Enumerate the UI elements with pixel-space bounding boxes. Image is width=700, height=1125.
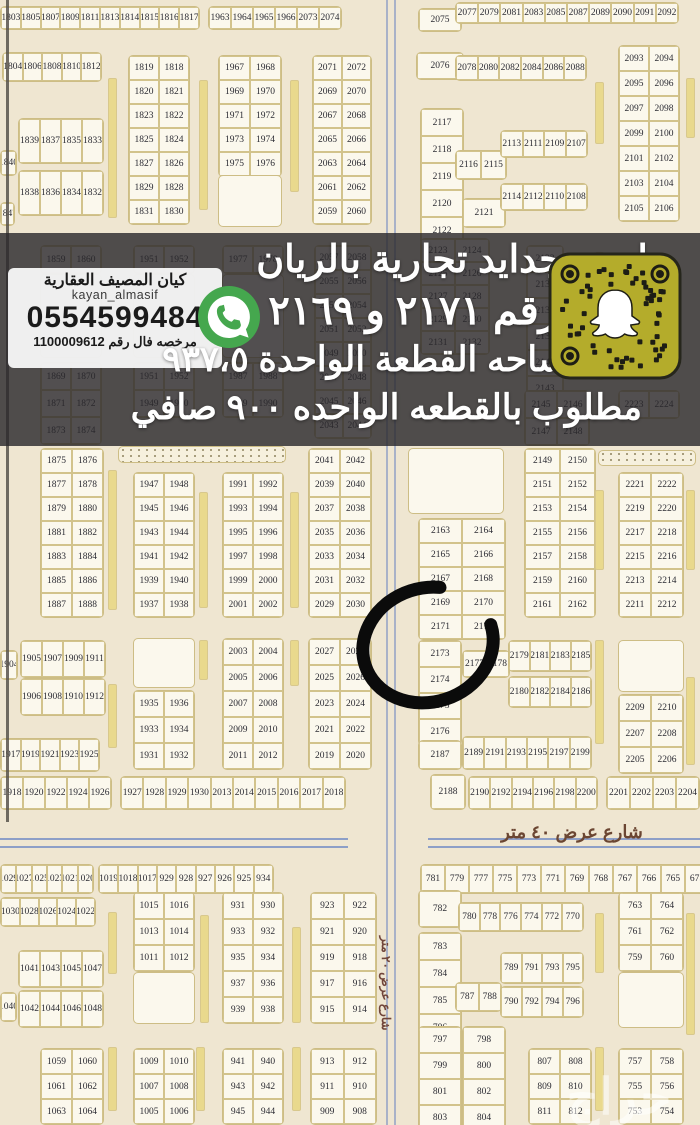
plot-cell: 2113 bbox=[501, 131, 523, 157]
plot-cell: 2166 bbox=[462, 543, 505, 567]
plot-cell: 2162 bbox=[560, 593, 595, 617]
plot-cell: 778 bbox=[480, 903, 501, 931]
plot-cell: 1008 bbox=[164, 1074, 194, 1099]
map-block-b-941: 941940943942945944 bbox=[222, 1048, 284, 1125]
map-block-s4 bbox=[595, 82, 604, 144]
map-block-s3 bbox=[290, 80, 299, 192]
map-block-m-empty-top bbox=[408, 448, 504, 514]
plot-cell: 771 bbox=[541, 865, 565, 893]
plot-cell: 1991 bbox=[223, 473, 253, 497]
map-block-s18 bbox=[200, 915, 209, 1023]
agency-phone[interactable]: 0554599484 bbox=[8, 302, 222, 334]
plot-cell: 2212 bbox=[651, 593, 683, 617]
map-block-park-left bbox=[118, 446, 286, 463]
plot-cell: 1909 bbox=[63, 641, 84, 677]
plot-cell: 2163 bbox=[419, 519, 462, 543]
plot-cell: 930 bbox=[253, 893, 283, 919]
map-block-b-787: 787788 bbox=[455, 982, 502, 1012]
plot-cell: 1965 bbox=[253, 7, 275, 29]
plot-cell: 1806 bbox=[23, 53, 43, 81]
plot-cell: 2007 bbox=[223, 691, 253, 717]
plot-cell: 2203 bbox=[653, 777, 676, 809]
plot-cell: 2038 bbox=[340, 497, 371, 521]
plot-cell: 2186 bbox=[571, 677, 592, 707]
plot-cell: 2096 bbox=[649, 71, 679, 96]
plot-cell: 936 bbox=[253, 971, 283, 997]
whatsapp-icon[interactable] bbox=[198, 286, 260, 348]
plot-cell: 2202 bbox=[630, 777, 653, 809]
plot-cell: 2184 bbox=[550, 677, 571, 707]
plot-cell: 1888 bbox=[72, 593, 103, 617]
plot-cell: 776 bbox=[500, 903, 521, 931]
map-block-strip-2077: 2077207920812083208520872089209020912092 bbox=[455, 2, 679, 24]
map-block-b-1019: 101910181017929928927926925934 bbox=[98, 864, 274, 894]
plot-cell: 915 bbox=[311, 997, 344, 1023]
plot-cell: 1921 bbox=[40, 739, 60, 771]
plot-cell: 2086 bbox=[543, 56, 565, 80]
map-block-b-763e bbox=[618, 972, 684, 1028]
map-block-s5 bbox=[686, 78, 695, 138]
plot-cell: 2026 bbox=[340, 665, 371, 691]
plot-cell: 2204 bbox=[676, 777, 699, 809]
map-block-m-1906: 1906190819101912 bbox=[20, 678, 106, 716]
plot-cell: 1807 bbox=[41, 7, 61, 29]
map-block-b-1059: 105910601061106210631064 bbox=[40, 1048, 104, 1125]
plot-cell: 1021 bbox=[62, 865, 77, 893]
plot-cell: 2014 bbox=[233, 777, 255, 809]
map-block-b-798: 798800802804 bbox=[462, 1026, 506, 1125]
plot-cell: 1838 bbox=[19, 171, 40, 215]
plot-cell: 1917 bbox=[1, 739, 21, 771]
plot-cell: 799 bbox=[419, 1053, 461, 1079]
plot-cell: 2198 bbox=[554, 777, 575, 809]
plot-cell: 1972 bbox=[250, 104, 281, 128]
plot-cell: 1924 bbox=[67, 777, 89, 809]
plot-cell: 2164 bbox=[462, 519, 505, 543]
plot-cell: 2111 bbox=[523, 131, 545, 157]
map-block-s15 bbox=[595, 640, 604, 744]
plot-cell: 1966 bbox=[275, 7, 297, 29]
plot-cell: 1881 bbox=[41, 521, 72, 545]
plot-cell: 2071 bbox=[313, 56, 342, 80]
plot-cell: 2092 bbox=[656, 3, 678, 23]
map-block-b-913: 913912911910909908 bbox=[310, 1048, 377, 1125]
plot-cell: 2153 bbox=[525, 497, 560, 521]
plot-cell: 2101 bbox=[619, 146, 649, 171]
plot-cell: 941 bbox=[223, 1049, 253, 1074]
plot-cell: 2040 bbox=[340, 473, 371, 497]
plot-cell: 2120 bbox=[421, 190, 463, 217]
plot-cell: 2097 bbox=[619, 96, 649, 121]
plot-cell: 789 bbox=[501, 953, 522, 983]
plot-cell: 1882 bbox=[72, 521, 103, 545]
plot-cell: 2175 bbox=[419, 693, 461, 719]
agency-handle: kayan_almasif bbox=[8, 288, 222, 302]
plot-cell: 790 bbox=[501, 987, 522, 1017]
plot-cell: 2112 bbox=[523, 184, 545, 210]
plot-cell: 1064 bbox=[72, 1099, 103, 1124]
plot-cell: 2195 bbox=[527, 737, 548, 769]
plot-cell: 2211 bbox=[619, 593, 651, 617]
map-block-blk-1839: 1839183718351833 bbox=[18, 118, 104, 164]
map-block-m-2180: 2180218221842186 bbox=[508, 676, 592, 708]
plot-cell: 1027 bbox=[16, 865, 31, 893]
plot-cell: 1996 bbox=[253, 521, 283, 545]
plot-cell: 2090 bbox=[611, 3, 633, 23]
plot-cell: 2155 bbox=[525, 521, 560, 545]
plot-cell: 2218 bbox=[651, 521, 683, 545]
map-block-b-1041: 1041104310451047 bbox=[18, 950, 104, 988]
map-block-m-1947: 1947194819451946194319441941194219391940… bbox=[133, 472, 195, 618]
map-block-m-2179: 2179218121832185 bbox=[508, 640, 592, 672]
map-block-col-2071: 2071207220692070206720682065206620632064… bbox=[312, 55, 372, 225]
plot-cell: 2093 bbox=[619, 46, 649, 71]
plot-cell: 2025 bbox=[309, 665, 340, 691]
plot-cell: 1875 bbox=[41, 449, 72, 473]
plot-cell: 1019 bbox=[99, 865, 118, 893]
plot-cell: 1062 bbox=[72, 1074, 103, 1099]
plot-cell: 2152 bbox=[560, 473, 595, 497]
plot-cell: 919 bbox=[311, 945, 344, 971]
plot-cell: 2196 bbox=[533, 777, 554, 809]
plot-cell: 1880 bbox=[72, 497, 103, 521]
plot-cell: 796 bbox=[563, 987, 584, 1017]
map-block-m-2163: 2163216421652166216721682169217021712172 bbox=[418, 518, 506, 640]
map-block-b-790: 790792794796 bbox=[500, 986, 584, 1018]
plot-cell: 2190 bbox=[469, 777, 490, 809]
plot-cell: 2018 bbox=[323, 777, 345, 809]
plot-cell: 1818 bbox=[159, 56, 189, 80]
map-block-m-1935: 193519361933193419311932 bbox=[133, 690, 195, 770]
plot-cell: 2077 bbox=[456, 3, 478, 23]
agency-name: كيان المصيف العقارية bbox=[8, 270, 222, 290]
plot-cell: 800 bbox=[463, 1053, 505, 1079]
plot-cell: 934 bbox=[254, 865, 273, 893]
plot-cell: 2027 bbox=[309, 639, 340, 665]
plot-cell: 797 bbox=[419, 1027, 461, 1053]
plot-cell: 2067 bbox=[313, 104, 342, 128]
plot-cell: 783 bbox=[419, 933, 461, 960]
plot-cell: 1830 bbox=[159, 200, 189, 224]
plot-cell: 1999 bbox=[223, 569, 253, 593]
plot-cell: 1816 bbox=[159, 7, 179, 29]
plot-cell: 2169 bbox=[419, 591, 462, 615]
plot-cell: 2114 bbox=[501, 184, 523, 210]
plot-cell: 2206 bbox=[651, 747, 683, 773]
plot-cell: 1992 bbox=[253, 473, 283, 497]
plot-cell: 804 bbox=[463, 1105, 505, 1125]
plot-cell: 1827 bbox=[129, 152, 159, 176]
plot-cell: 2168 bbox=[462, 567, 505, 591]
map-block-blk-1838: 1838183618341832 bbox=[18, 170, 104, 216]
map-block-b-923: 923922921920919918917916915914 bbox=[310, 892, 377, 1024]
plot-cell: 1942 bbox=[164, 545, 194, 569]
map-block-m-2190: 219021922194219621982200 bbox=[468, 776, 598, 810]
plot-cell: 1042 bbox=[19, 991, 40, 1027]
plot-cell: 1823 bbox=[129, 104, 159, 128]
map-block-b-931: 931930933932935934937936939938 bbox=[222, 892, 284, 1024]
plot-cell: 1933 bbox=[134, 717, 164, 743]
plot-cell: 772 bbox=[542, 903, 563, 931]
plot-cell: 1017 bbox=[138, 865, 157, 893]
plot-cell: 2032 bbox=[340, 569, 371, 593]
plot-cell: 1819 bbox=[129, 56, 159, 80]
plot-cell: 944 bbox=[253, 1099, 283, 1124]
plot-cell: 1025 bbox=[32, 865, 47, 893]
plot-cell: 909 bbox=[311, 1099, 344, 1124]
map-block-s20 bbox=[595, 913, 604, 973]
plot-cell: 1820 bbox=[129, 80, 159, 104]
plot-cell: 2064 bbox=[342, 152, 371, 176]
screenshot-root: 1803180518071809181118131814181518161817… bbox=[0, 0, 700, 1125]
plot-cell: 1048 bbox=[82, 991, 103, 1027]
plot-cell: 1934 bbox=[164, 717, 194, 743]
plot-cell: 2179 bbox=[509, 641, 530, 671]
street-label-horizontal: شارع عرض ٤٠ متر bbox=[462, 822, 682, 843]
plot-cell: 2078 bbox=[456, 56, 478, 80]
plot-cell: 1948 bbox=[164, 473, 194, 497]
plot-cell: 2034 bbox=[340, 545, 371, 569]
plot-cell: 2066 bbox=[342, 128, 371, 152]
plot-cell: 2178 bbox=[486, 651, 509, 677]
plot-cell: 1023 bbox=[47, 865, 62, 893]
plot-cell: 1832 bbox=[82, 171, 103, 215]
plot-cell: 675 bbox=[685, 865, 700, 893]
plot-cell: 774 bbox=[521, 903, 542, 931]
plot-cell: 1809 bbox=[60, 7, 80, 29]
plot-cell: 2156 bbox=[560, 521, 595, 545]
plot-cell: 802 bbox=[463, 1079, 505, 1105]
plot-cell: 1935 bbox=[134, 691, 164, 717]
plot-cell: 1016 bbox=[164, 893, 194, 919]
snapcode-icon[interactable] bbox=[548, 252, 682, 380]
plot-cell: 2108 bbox=[566, 184, 588, 210]
plot-cell: 934 bbox=[253, 945, 283, 971]
plot-cell: 921 bbox=[311, 919, 344, 945]
plot-cell: 942 bbox=[253, 1074, 283, 1099]
plot-cell: 2031 bbox=[309, 569, 340, 593]
plot-cell: 917 bbox=[311, 971, 344, 997]
plot-cell: 1834 bbox=[61, 171, 82, 215]
plot-cell: 2219 bbox=[619, 497, 651, 521]
plot-cell: 1928 bbox=[143, 777, 165, 809]
plot-cell: 769 bbox=[565, 865, 589, 893]
plot-cell: 1805 bbox=[21, 7, 41, 29]
plot-cell: 1997 bbox=[223, 545, 253, 569]
plot-cell: 2012 bbox=[253, 743, 283, 769]
plot-cell: 939 bbox=[223, 997, 253, 1023]
plot-cell: 2022 bbox=[340, 717, 371, 743]
plot-cell: 1043 bbox=[40, 951, 61, 987]
plot-cell: 767 bbox=[613, 865, 637, 893]
plot-cell: 1929 bbox=[166, 777, 188, 809]
plot-cell: 1905 bbox=[21, 641, 42, 677]
plot-cell: 765 bbox=[661, 865, 685, 893]
map-block-strip-1963: 196319641965196620732074 bbox=[208, 6, 342, 30]
plot-cell: 1044 bbox=[40, 991, 61, 1027]
plot-cell: 2010 bbox=[253, 717, 283, 743]
plot-cell: 929 bbox=[157, 865, 176, 893]
plot-cell: 2102 bbox=[649, 146, 679, 171]
map-block-m-2041: 2041204220392040203720382035203620332034… bbox=[308, 448, 372, 618]
plot-cell: 784 bbox=[419, 960, 461, 987]
plot-cell: 1047 bbox=[82, 951, 103, 987]
plot-cell: 1020 bbox=[78, 865, 93, 893]
plot-cell: 937 bbox=[223, 971, 253, 997]
plot-cell: 2191 bbox=[484, 737, 505, 769]
plot-cell: 916 bbox=[344, 971, 377, 997]
plot-cell: 1885 bbox=[41, 569, 72, 593]
plot-cell: 1009 bbox=[134, 1049, 164, 1074]
map-block-m-1927: 1927192819291930201320142015201620172018 bbox=[120, 776, 346, 810]
map-block-m-1918: 19181920192219241926 bbox=[0, 776, 112, 810]
plot-cell: 2028 bbox=[340, 639, 371, 665]
plot-cell: 931 bbox=[223, 893, 253, 919]
plot-cell: 2062 bbox=[342, 176, 371, 200]
plot-cell: 1007 bbox=[134, 1074, 164, 1099]
plot-cell: 2105 bbox=[619, 196, 649, 221]
plot-cell: 775 bbox=[493, 865, 517, 893]
plot-cell: 801 bbox=[419, 1079, 461, 1105]
plot-cell: 777 bbox=[469, 865, 493, 893]
map-block-s13 bbox=[199, 640, 208, 680]
plot-cell: 914 bbox=[344, 997, 377, 1023]
map-block-b-1009: 100910101007100810051006 bbox=[133, 1048, 195, 1125]
plot-cell: 2019 bbox=[309, 743, 340, 769]
plot-cell: 766 bbox=[637, 865, 661, 893]
plot-cell: 1995 bbox=[223, 521, 253, 545]
plot-cell: 2088 bbox=[564, 56, 586, 80]
plot-cell: 2005 bbox=[223, 665, 253, 691]
map-block-s2 bbox=[199, 80, 208, 210]
plot-cell: 2210 bbox=[651, 695, 683, 721]
map-block-m-2003: 2003200420052006200720082009201020112012 bbox=[222, 638, 284, 770]
plot-cell: 1814 bbox=[120, 7, 140, 29]
map-block-s12 bbox=[108, 684, 117, 748]
plot-cell: 2117 bbox=[421, 109, 463, 136]
plot-cell: 2171 bbox=[419, 615, 462, 639]
plot-cell: 2172 bbox=[462, 615, 505, 639]
plot-cell: 1923 bbox=[60, 739, 80, 771]
plot-cell: 1831 bbox=[129, 200, 159, 224]
plot-cell: 1813 bbox=[100, 7, 120, 29]
plot-cell: 2098 bbox=[649, 96, 679, 121]
plot-cell: 2207 bbox=[619, 721, 651, 747]
street-line-horizontal bbox=[0, 838, 348, 840]
plot-cell: 2194 bbox=[512, 777, 533, 809]
map-block-s23 bbox=[196, 1047, 205, 1111]
plot-cell: 1839 bbox=[19, 119, 40, 163]
plot-cell: 2006 bbox=[253, 665, 283, 691]
plot-cell: 1910 bbox=[63, 679, 84, 715]
plot-cell: 1811 bbox=[80, 7, 100, 29]
plot-cell: 761 bbox=[619, 919, 651, 945]
plot-cell: 1878 bbox=[72, 473, 103, 497]
plot-cell: 2035 bbox=[309, 521, 340, 545]
map-block-s17 bbox=[108, 912, 117, 974]
plot-cell: 1836 bbox=[40, 171, 61, 215]
plot-cell: 1876 bbox=[72, 449, 103, 473]
plot-cell: 1920 bbox=[23, 777, 45, 809]
plot-cell: 1041 bbox=[19, 951, 40, 987]
plot-cell: 911 bbox=[311, 1074, 344, 1099]
plot-cell: 1045 bbox=[61, 951, 82, 987]
plot-cell: 2065 bbox=[313, 128, 342, 152]
map-block-s10 bbox=[595, 490, 604, 570]
plot-cell: 2109 bbox=[544, 131, 566, 157]
plot-cell: 1927 bbox=[121, 777, 143, 809]
plot-cell: 2039 bbox=[309, 473, 340, 497]
plot-cell: 2110 bbox=[544, 184, 566, 210]
plot-cell: 2060 bbox=[342, 200, 371, 224]
map-block-strip-2114: 2114211221102108 bbox=[500, 183, 588, 211]
map-block-col-2093: 2093209420952096209720982099210021012102… bbox=[618, 45, 680, 222]
map-block-m-2209: 220922102207220822052206 bbox=[618, 694, 684, 774]
plot-cell: 2089 bbox=[589, 3, 611, 23]
plot-cell: 2157 bbox=[525, 545, 560, 569]
plot-cell: 1906 bbox=[21, 679, 42, 715]
map-block-m-2221: 2221222222192220221722182215221622132214… bbox=[618, 472, 684, 618]
map-block-m-2187: 2187 bbox=[418, 740, 462, 770]
map-block-pair-2116: 21162115 bbox=[455, 150, 507, 180]
map-block-b-1015e bbox=[133, 972, 195, 1024]
plot-cell: 1826 bbox=[159, 152, 189, 176]
plot-cell: 2161 bbox=[525, 593, 560, 617]
plot-cell: 1012 bbox=[164, 945, 194, 971]
plot-cell: 1946 bbox=[164, 497, 194, 521]
plot-cell: 2029 bbox=[309, 593, 340, 617]
plot-cell: 781 bbox=[421, 865, 445, 893]
plot-cell: 1828 bbox=[159, 176, 189, 200]
plot-cell: 918 bbox=[344, 945, 377, 971]
plot-cell: 1028 bbox=[20, 898, 39, 926]
plot-cell: 940 bbox=[253, 1049, 283, 1074]
plot-cell: 2201 bbox=[607, 777, 630, 809]
ad-plot-numbers: رقم ٢١٧١ و ٢١٦٩ bbox=[268, 288, 558, 334]
map-block-s1 bbox=[108, 78, 117, 218]
plot-cell: 2100 bbox=[649, 121, 679, 146]
plot-cell: 935 bbox=[223, 945, 253, 971]
plot-cell: 2000 bbox=[253, 569, 283, 593]
plot-cell: 928 bbox=[176, 865, 195, 893]
plot-cell: 2069 bbox=[313, 80, 342, 104]
plot-cell: 1812 bbox=[81, 53, 101, 81]
plot-cell: 2221 bbox=[619, 473, 651, 497]
plot-cell: 2072 bbox=[342, 56, 371, 80]
plot-cell: 1918 bbox=[1, 777, 23, 809]
plot-cell: 768 bbox=[589, 865, 613, 893]
plot-cell: 2036 bbox=[340, 521, 371, 545]
plot-cell: 2177 bbox=[463, 651, 486, 677]
plot-cell: 2197 bbox=[548, 737, 569, 769]
map-block-empty-1967b bbox=[218, 175, 282, 227]
ad-banner-overlay: كيان المصيف العقارية kayan_almasif 05545… bbox=[0, 233, 700, 446]
plot-cell: 933 bbox=[223, 919, 253, 945]
map-block-m-2188: 2188 bbox=[430, 774, 466, 810]
plot-cell: 1061 bbox=[41, 1074, 72, 1099]
map-block-edge-1040: 1040 bbox=[0, 992, 17, 1022]
plot-cell: 779 bbox=[445, 865, 469, 893]
plot-cell: 2023 bbox=[309, 691, 340, 717]
plot-cell: 780 bbox=[459, 903, 480, 931]
plot-cell: 2208 bbox=[651, 721, 683, 747]
plot-cell: 1063 bbox=[41, 1099, 72, 1124]
plot-cell: 2041 bbox=[309, 449, 340, 473]
map-block-strip-2078: 207820802082208420862088 bbox=[455, 55, 587, 81]
plot-cell: 927 bbox=[196, 865, 215, 893]
plot-cell: 1931 bbox=[134, 743, 164, 769]
plot-cell: 913 bbox=[311, 1049, 344, 1074]
